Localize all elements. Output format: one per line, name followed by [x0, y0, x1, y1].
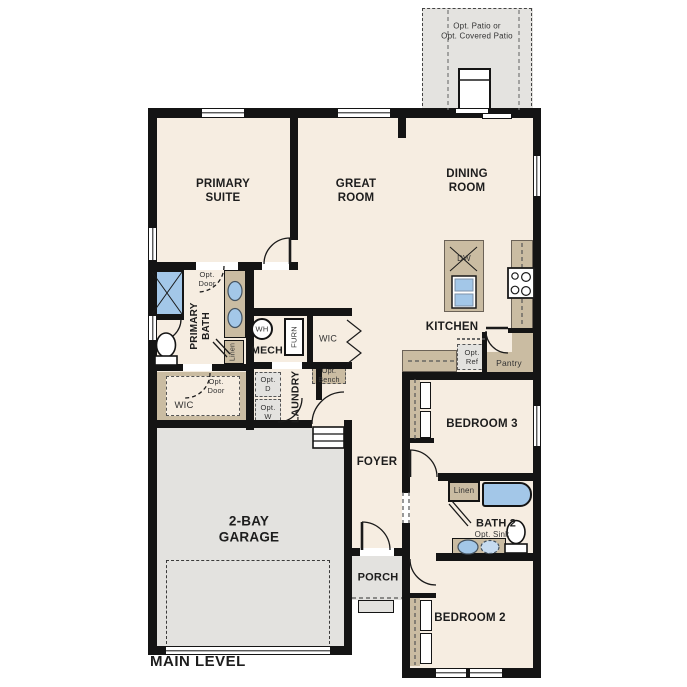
wall [508, 328, 533, 333]
garage-door-dashed-area [166, 560, 330, 644]
porch-step [358, 600, 394, 613]
closet-door-panel [420, 633, 432, 664]
room-label-dining-room: DINING ROOM [446, 167, 487, 195]
level-title: MAIN LEVEL [150, 653, 246, 671]
closet-door-panel [420, 411, 431, 438]
wall [402, 372, 410, 678]
front-door-opening [360, 548, 394, 556]
wall [436, 553, 533, 561]
room-label-mech: MECH [251, 345, 283, 358]
room-label-bedroom2: BEDROOM 2 [434, 611, 505, 625]
window [148, 228, 157, 260]
opt-door-opening-wic [183, 364, 212, 371]
wall [307, 316, 313, 362]
wall [148, 420, 312, 428]
opt-door-label: Opt. Door [207, 377, 224, 395]
window [533, 406, 541, 446]
window [202, 108, 244, 118]
bathtub [482, 482, 532, 507]
room-label-foyer: FOYER [357, 455, 398, 469]
wall [344, 420, 352, 655]
mech-door-opening [272, 362, 302, 369]
room-label-porch: PORCH [358, 571, 399, 584]
closet-door-panel [420, 600, 432, 631]
hall-cased-opening [402, 493, 410, 523]
wall [410, 593, 436, 598]
wic-primary-label: WIC [174, 400, 193, 412]
wall [482, 332, 487, 372]
window [338, 108, 390, 118]
patio-label: Opt. Patio or Opt. Covered Patio [441, 21, 513, 41]
closet-door-panel [420, 382, 431, 409]
primary-vanity [224, 270, 246, 338]
foyer-floor [352, 428, 402, 554]
furnace-label: FURN [289, 326, 298, 348]
dishwasher-label: DW [457, 254, 471, 264]
patio-chimney [458, 68, 491, 110]
opt-door-label: Opt. Door [198, 270, 215, 288]
wall [402, 372, 533, 380]
linen-label: Linen [230, 343, 239, 361]
kitchen-island [444, 240, 484, 312]
room-label-laundry: LAUNDRY [290, 371, 303, 423]
room-label-primary-suite: PRIMARY SUITE [196, 177, 250, 205]
sliding-door-panel [482, 113, 512, 119]
wall [398, 118, 406, 138]
opt-bench-label: Opt. Bench [318, 367, 339, 385]
wic-hall-label: WIC [319, 334, 337, 345]
window [533, 156, 541, 196]
linen-hall-label: Linen [454, 486, 475, 496]
wall [148, 108, 157, 655]
room-label-great-room: GREAT ROOM [336, 177, 376, 205]
bedroom3-closet-shelf [410, 378, 420, 440]
room-label-kitchen: KITCHEN [426, 320, 479, 334]
window [470, 668, 502, 678]
room-label-bedroom3: BEDROOM 3 [446, 417, 517, 431]
wall [410, 438, 434, 443]
pantry-label: Pantry [496, 358, 522, 368]
wall [254, 308, 352, 316]
water-heater-label: WH [256, 324, 269, 333]
window [436, 668, 466, 678]
kitchen-right-counter [511, 240, 533, 330]
bedroom2-closet-shelf [410, 598, 420, 666]
kitchen-bottom-counter [402, 350, 457, 372]
room-label-primary-bath: PRIMARY BATH [189, 302, 213, 349]
primary-door-opening [262, 262, 289, 270]
opt-dryer-label: Opt. D [261, 375, 276, 393]
floor-plan: Opt. Patio or Opt. Covered Patio PRIMARY… [0, 0, 687, 687]
room-label-garage: 2-BAY GARAGE [219, 514, 279, 547]
wall [157, 315, 184, 320]
opt-ref-label: Opt. Ref [465, 348, 480, 366]
opt-sink-label: Opt. Sink [475, 530, 510, 540]
opt-washer-label: Opt. W [261, 403, 276, 421]
wall [438, 473, 533, 481]
opt-door-opening-bath [196, 262, 238, 270]
wall [290, 118, 298, 240]
window [148, 316, 157, 340]
room-label-bath2: BATH 2 [476, 517, 516, 530]
